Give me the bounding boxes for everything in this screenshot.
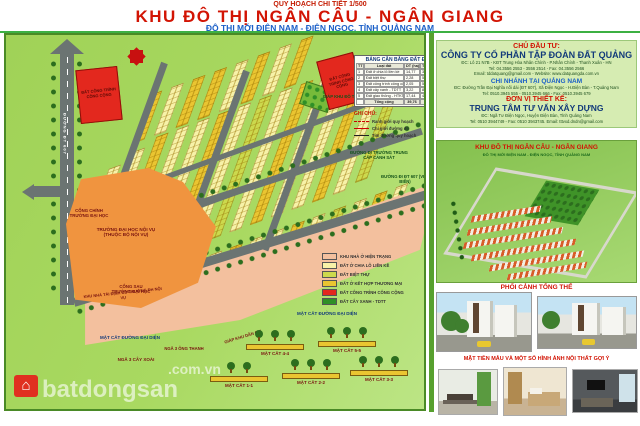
branch-header: CHI NHÁNH TẠI QUẢNG NAM: [437, 78, 636, 85]
car-icon: [582, 339, 595, 345]
section-trees: [246, 325, 304, 343]
poster-root: QUY HOẠCH CHI TIẾT 1/500 KHU ĐÔ THỊ NGÂN…: [0, 0, 640, 426]
tree-icon: [359, 356, 367, 364]
townhouse: [495, 305, 517, 337]
road-profile: [282, 373, 340, 379]
legend-item: KHU NHÀ Ở HIỆN TRẠNG: [322, 253, 426, 260]
facade-render-right: [537, 296, 637, 349]
street-trees: [49, 57, 58, 297]
legend-label: ĐẤT CÔNG TRÌNH CÔNG CỘNG: [340, 290, 404, 295]
section-label: MẶT CẮT 3-3: [350, 377, 408, 382]
tree-icon: [375, 356, 383, 364]
panel-divider: [429, 33, 434, 412]
facade-accent: [578, 305, 584, 331]
public-parcel-label: ĐẤT CÔNG TRÌNH CÔNG CỘNG: [80, 87, 117, 100]
direction-school-label: ĐƯỜNG ĐI TRƯỜNG TRUNG CẤP CẢNH SÁT: [350, 151, 408, 161]
car-icon: [477, 341, 491, 347]
pillows: [530, 388, 542, 394]
tree-icon: [287, 330, 295, 338]
tree-icon: [243, 362, 251, 370]
cross-section: MẶT CẮT 2-2: [282, 354, 340, 385]
watermark-brand: batdongsan: [42, 376, 178, 404]
watermark-domain: .com.vn: [168, 361, 221, 377]
table-grid: TT Loại đất DT (ha) Tỷ lệ (%) 1Đất ở chi…: [356, 63, 426, 105]
perspective-caption: PHỐI CẢNH TỔNG THỂ: [436, 284, 637, 291]
interior-photo-living: [572, 369, 638, 413]
legend-swatch: [322, 280, 337, 287]
tree-icon: [255, 330, 263, 338]
watermark-logo: ⌂: [14, 375, 38, 397]
dashed-line-icon: [354, 121, 369, 122]
section-trees: [318, 322, 376, 340]
cross-section: MẶT CẮT 5-5: [318, 322, 376, 353]
public-parcel-west: ĐẤT CÔNG TRÌNH CÔNG CỘNG: [75, 66, 122, 124]
chairs: [443, 400, 477, 404]
axis-line-icon: [354, 135, 369, 136]
tree-icon: [391, 356, 399, 364]
cell-total: 39,76: [404, 99, 420, 105]
townhouse: [572, 303, 600, 335]
cell-total: Tổng cộng: [364, 99, 404, 105]
legend-swatch: [322, 262, 337, 269]
accent-wall: [477, 372, 491, 406]
junction-thanh-label: NGÃ 3 ÔNG THANH: [158, 347, 210, 352]
legend-swatch: [322, 298, 337, 305]
legend-swatch: [322, 253, 337, 260]
project-star-icon: [130, 50, 143, 63]
road-profile: [350, 370, 408, 376]
legend-item: ĐẤT Ở KẾT HỢP THƯƠNG MẠI: [322, 280, 426, 287]
tree-icon: [323, 359, 331, 367]
tree-icon: [455, 319, 469, 333]
direction-dt607-label: ĐƯỜNG ĐI ĐT 607 (VEN BIỂN): [378, 175, 426, 185]
designer-name: TRUNG TÂM TƯ VẤN XÂY DỰNG: [437, 103, 636, 113]
wardrobe: [508, 372, 522, 404]
tree-icon: [227, 362, 235, 370]
note-item: Tim đường quy hoạch: [354, 133, 426, 138]
townhouse: [467, 301, 493, 337]
legend-item: ĐẤT CÔNG TRÌNH CÔNG CỘNG: [322, 289, 426, 296]
legend-label: ĐẤT Ở CHIA LÔ LIỀN KỀ: [340, 263, 389, 268]
facades-caption: MẶT TIỀN MẪU VÀ MỘT SỐ HÌNH ẢNH NỘI THẤT…: [436, 356, 637, 362]
window: [619, 374, 635, 402]
tree-icon: [542, 311, 560, 329]
legend-item: ĐẤT BIỆT THỰ: [322, 271, 426, 278]
tree-icon: [307, 359, 315, 367]
sections-title-left: MẶT CẮT ĐƯỜNG ĐẠI DIỆN: [84, 335, 176, 340]
road-profile: [318, 341, 376, 347]
master-plan-map: ĐƯỜNG 27M ĐƯỜNG ĐT 607 CỔNG CHÍNH TRƯỜNG…: [4, 33, 426, 411]
west-branch-road: [33, 186, 61, 197]
interior-photo-bedroom: [503, 367, 567, 416]
sofa: [581, 398, 613, 407]
notes-title: GHI CHÚ:: [354, 111, 426, 117]
section-trees: [282, 354, 340, 372]
aerial-perspective-panel: KHU ĐÔ THỊ NGÂN CÂU - NGÂN GIANG ĐÔ THỊ …: [436, 140, 637, 283]
investor-name: CÔNG TY CỔ PHẦN TẬP ĐOÀN ĐẤT QUẢNG: [437, 50, 636, 60]
branch-address: ĐC: Đường Trần Đại Nghĩa nối dài (ĐT 607…: [437, 85, 636, 91]
tree-icon: [343, 327, 351, 335]
highway-label: ĐƯỜNG ĐT 607: [62, 113, 67, 155]
perspective-subtitle: ĐÔ THỊ MỚI ĐIỆN NAM - ĐIỆN NGỌC, TỈNH QU…: [437, 152, 636, 157]
north-arrow-icon: [50, 39, 84, 54]
junction-xoai-label: NGÃ 3 CÂY XOÀI: [110, 357, 162, 362]
tree-icon: [291, 359, 299, 367]
university-main-gate-label: CỔNG CHÍNH TRƯỜNG ĐẠI HỌC: [64, 209, 114, 219]
legend-label: ĐẤT CÂY XANH - TDTT: [340, 299, 386, 304]
note-label: Ranh giới quy hoạch: [372, 119, 414, 124]
legend-swatch: [322, 289, 337, 296]
road-centerline: [67, 55, 68, 303]
townhouse: [602, 307, 626, 335]
legend-item: ĐẤT Ở CHIA LÔ LIỀN KỀ: [322, 262, 426, 269]
tree-icon: [271, 330, 279, 338]
section-trees: [350, 351, 408, 369]
interior-photo-dining: [438, 369, 498, 415]
legend-label: KHU NHÀ Ở HIỆN TRẠNG: [340, 254, 391, 259]
land-balance-table: BẢNG CÂN BẰNG ĐẤT ĐAI TT Loại đất DT (ha…: [354, 55, 426, 107]
note-label: Chỉ giới đường đỏ: [372, 126, 409, 131]
investor-header: CHỦ ĐẦU TƯ:: [437, 43, 636, 50]
investor-email: Email: tddatquang@gmail.com - Website: w…: [437, 71, 636, 77]
section-label: MẶT CẮT 1-1: [210, 383, 268, 388]
cross-section: MẶT CẮT 4-4: [246, 325, 304, 356]
tv-screen: [587, 380, 605, 390]
color-legend: KHU NHÀ Ở HIỆN TRẠNG ĐẤT Ở CHIA LÔ LIỀN …: [322, 251, 426, 305]
legend-swatch: [322, 271, 337, 278]
university-label: TRƯỜNG ĐẠI HỌC NỘI VỤ (THUỘC BỘ NỘI VỤ): [94, 227, 158, 238]
cross-section: MẶT CẮT 3-3: [350, 351, 408, 382]
map-notes: GHI CHÚ: Ranh giới quy hoạch Chỉ giới đư…: [354, 111, 426, 138]
sections-title-right: MẶT CẮT ĐƯỜNG ĐẠI DIỆN: [288, 311, 366, 316]
note-item: Ranh giới quy hoạch: [354, 119, 426, 124]
legend-label: ĐẤT Ở KẾT HỢP THƯƠNG MẠI: [340, 281, 402, 286]
tree-icon: [359, 327, 367, 335]
note-item: Chỉ giới đường đỏ: [354, 126, 426, 131]
cell: [356, 99, 364, 105]
section-label: MẶT CẮT 2-2: [282, 380, 340, 385]
tree-icon: [327, 327, 335, 335]
red-line-icon: [354, 128, 369, 129]
designer-phone: Tel: 0510 3944749 - Fax: 0510 3943745. E…: [437, 119, 636, 125]
legend-label: ĐẤT BIỆT THỰ: [340, 272, 370, 277]
bed: [528, 392, 560, 406]
investor-address: ĐC: Lô 21 N7B - KĐT Trung Hòa Nhân Chính…: [437, 60, 636, 66]
cell-total: 100: [420, 99, 426, 105]
road-profile: [246, 344, 304, 350]
investor-box: CHỦ ĐẦU TƯ: CÔNG TY CỔ PHẦN TẬP ĐOÀN ĐẤT…: [436, 40, 637, 128]
note-label: Tim đường quy hoạch: [372, 133, 416, 138]
facade-accent: [473, 303, 479, 333]
legend-item: ĐẤT CÂY XANH - TDTT: [322, 298, 426, 305]
perspective-title: KHU ĐÔ THỊ NGÂN CÂU - NGÂN GIANG: [437, 144, 636, 151]
facade-render-left: [436, 292, 532, 352]
